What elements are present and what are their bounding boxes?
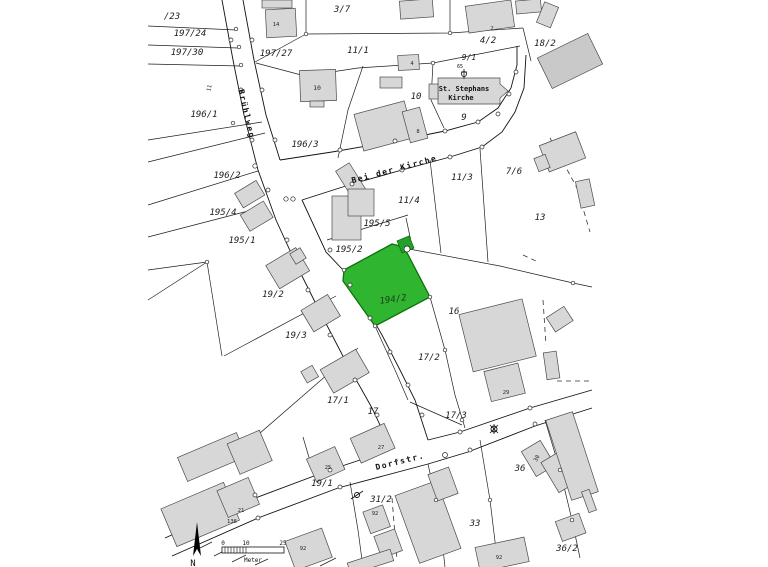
house-number-25: 25 xyxy=(325,465,332,471)
parcel-label-23: /23 xyxy=(164,12,180,22)
street-label-bei-der-kirche: Bei der Kirche xyxy=(350,153,438,186)
parcel-label-19-2: 19/2 xyxy=(262,290,284,300)
well-icon xyxy=(490,424,498,434)
parcel-label-17-2: 17/2 xyxy=(418,353,440,363)
scale-tick-0: 0 xyxy=(221,540,225,547)
house-number-29: 29 xyxy=(503,390,510,396)
parcel-label-196-3: 196/3 xyxy=(291,140,318,150)
church-point-symbol xyxy=(461,69,467,79)
parcel-label-195-2: 195/2 xyxy=(335,245,362,255)
house-number-21: 21 xyxy=(238,508,245,514)
parcel-194-2-polygon[interactable] xyxy=(343,244,430,326)
parcel-label-11-1: 11/1 xyxy=(347,46,369,56)
parcel-label-13: 13 xyxy=(535,213,546,223)
church-label-line1: St. Stephans xyxy=(439,85,490,93)
house-number-92b: 92 xyxy=(300,546,307,552)
house-number-136: 136 xyxy=(227,519,237,525)
parcel-label-11-4: 11/4 xyxy=(398,196,420,206)
scale-tick-25: 25 xyxy=(279,540,287,547)
house-number-10: 10 xyxy=(313,84,321,92)
house-number-92c: 92 xyxy=(496,555,503,561)
parcel-label-9: 9 xyxy=(461,113,466,123)
north-label: N xyxy=(190,559,195,567)
scale-tick-10: 10 xyxy=(242,540,250,547)
parcel-label-36-2: 36/2 xyxy=(555,544,578,554)
parcel-label-196-1: 196/1 xyxy=(190,110,217,120)
street-label-bruehlweg: Brühlweg xyxy=(236,88,256,139)
cadastral-map: N 0 10 25 Meter /23 197/24 197/30 196/1 … xyxy=(0,0,768,567)
parcel-label-3-7: 3/7 xyxy=(333,5,351,15)
parcel-label-36: 36 xyxy=(514,464,526,474)
parcel-label-18-2: 18/2 xyxy=(534,39,556,49)
parcel-label-195-5: 195/5 xyxy=(363,219,390,229)
parcel-label-10: 10 xyxy=(411,92,422,102)
parcel-label-195-1: 195/1 xyxy=(228,236,255,246)
church-label-line2: Kirche xyxy=(448,94,473,102)
house-number-8: 8 xyxy=(416,129,419,135)
house-number-11: 11 xyxy=(206,84,214,92)
parcel-label-197-30: 197/30 xyxy=(171,48,204,58)
map-canvas: N 0 10 25 Meter /23 197/24 197/30 196/1 … xyxy=(0,0,768,567)
parcel-label-17: 17 xyxy=(368,407,379,417)
parcel-label-7-6: 7/6 xyxy=(506,167,522,177)
scale-unit: Meter xyxy=(244,557,262,564)
parcel-label-11-3: 11/3 xyxy=(451,173,473,183)
church-point-number: 65 xyxy=(457,64,463,70)
parcel-label-9-1: 9/1 xyxy=(462,53,476,62)
parcel-label-33: 33 xyxy=(469,519,481,529)
house-number-92a: 92 xyxy=(372,511,379,517)
parcel-label-31-2: 31/2 xyxy=(369,495,392,505)
parcel-label-17-3: 17/3 xyxy=(445,411,467,421)
street-lamp-icon xyxy=(351,491,363,499)
parcel-label-197-24: 197/24 xyxy=(174,29,207,39)
house-number-27: 27 xyxy=(378,445,385,451)
parcel-label-19-3: 19/3 xyxy=(285,331,307,341)
scale-bar: 0 10 25 Meter xyxy=(221,540,287,564)
parcel-label-17-1: 17/1 xyxy=(327,396,349,406)
parcel-label-4-2: 4/2 xyxy=(480,36,496,46)
house-number-2: 2 xyxy=(490,26,493,32)
parcel-label-196-2: 196/2 xyxy=(213,171,240,181)
parcel-label-16: 16 xyxy=(449,307,460,317)
parcel-label-195-4: 195/4 xyxy=(209,208,236,218)
house-number-14: 14 xyxy=(273,22,280,28)
parcel-label-197-27: 197/27 xyxy=(260,49,293,59)
parcel-label-19-1: 19/1 xyxy=(311,479,333,489)
